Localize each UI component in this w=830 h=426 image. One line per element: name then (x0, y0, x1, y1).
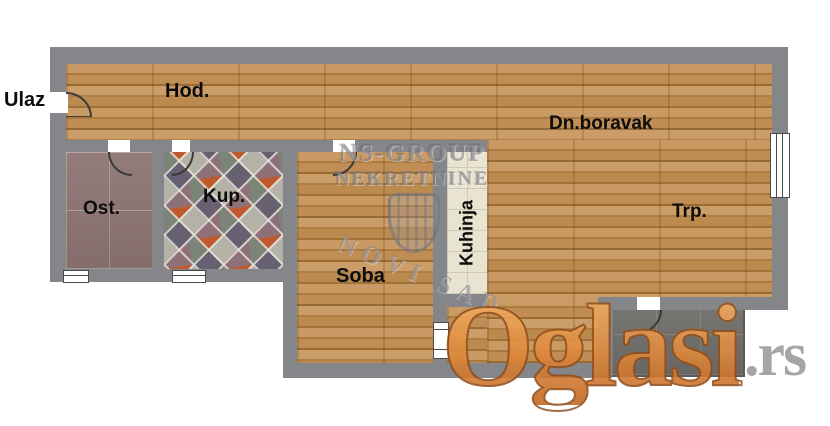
storage-vent-window (63, 270, 89, 283)
label-dining: Trp. (672, 201, 707, 223)
wall-left (50, 47, 66, 282)
label-storage: Ost. (83, 198, 120, 220)
label-living-room: Dn.boravak (549, 113, 652, 135)
wall-bathroom-bedroom (283, 140, 297, 378)
label-bathroom: Kup. (203, 186, 245, 208)
wall-top (50, 47, 788, 64)
label-entrance: Ulaz (4, 89, 45, 112)
label-bedroom: Soba (336, 265, 385, 288)
agency-watermark-line2: NEKRETNINE (330, 168, 495, 191)
bathroom-vent-window (172, 270, 206, 283)
floor-living-room (487, 140, 772, 297)
site-watermark-name: Oglasi (442, 287, 739, 405)
entrance-door-opening (48, 92, 68, 113)
label-hallway: Hod. (165, 80, 209, 103)
wall-storage-bathroom-divider (152, 140, 164, 269)
label-kitchen: Kuhinja (457, 200, 478, 266)
site-watermark-tld: .rs (744, 324, 805, 386)
storage-door-opening (108, 140, 130, 152)
agency-watermark-line1: NS-GROUP (330, 140, 495, 168)
floor-plan: NS-GROUP NEKRETNINE NOVI SAD Ulaz Hod. D… (0, 0, 830, 426)
agency-watermark: NS-GROUP NEKRETNINE (330, 140, 495, 191)
living-room-window (770, 133, 790, 198)
bathroom-door-opening (172, 140, 190, 152)
